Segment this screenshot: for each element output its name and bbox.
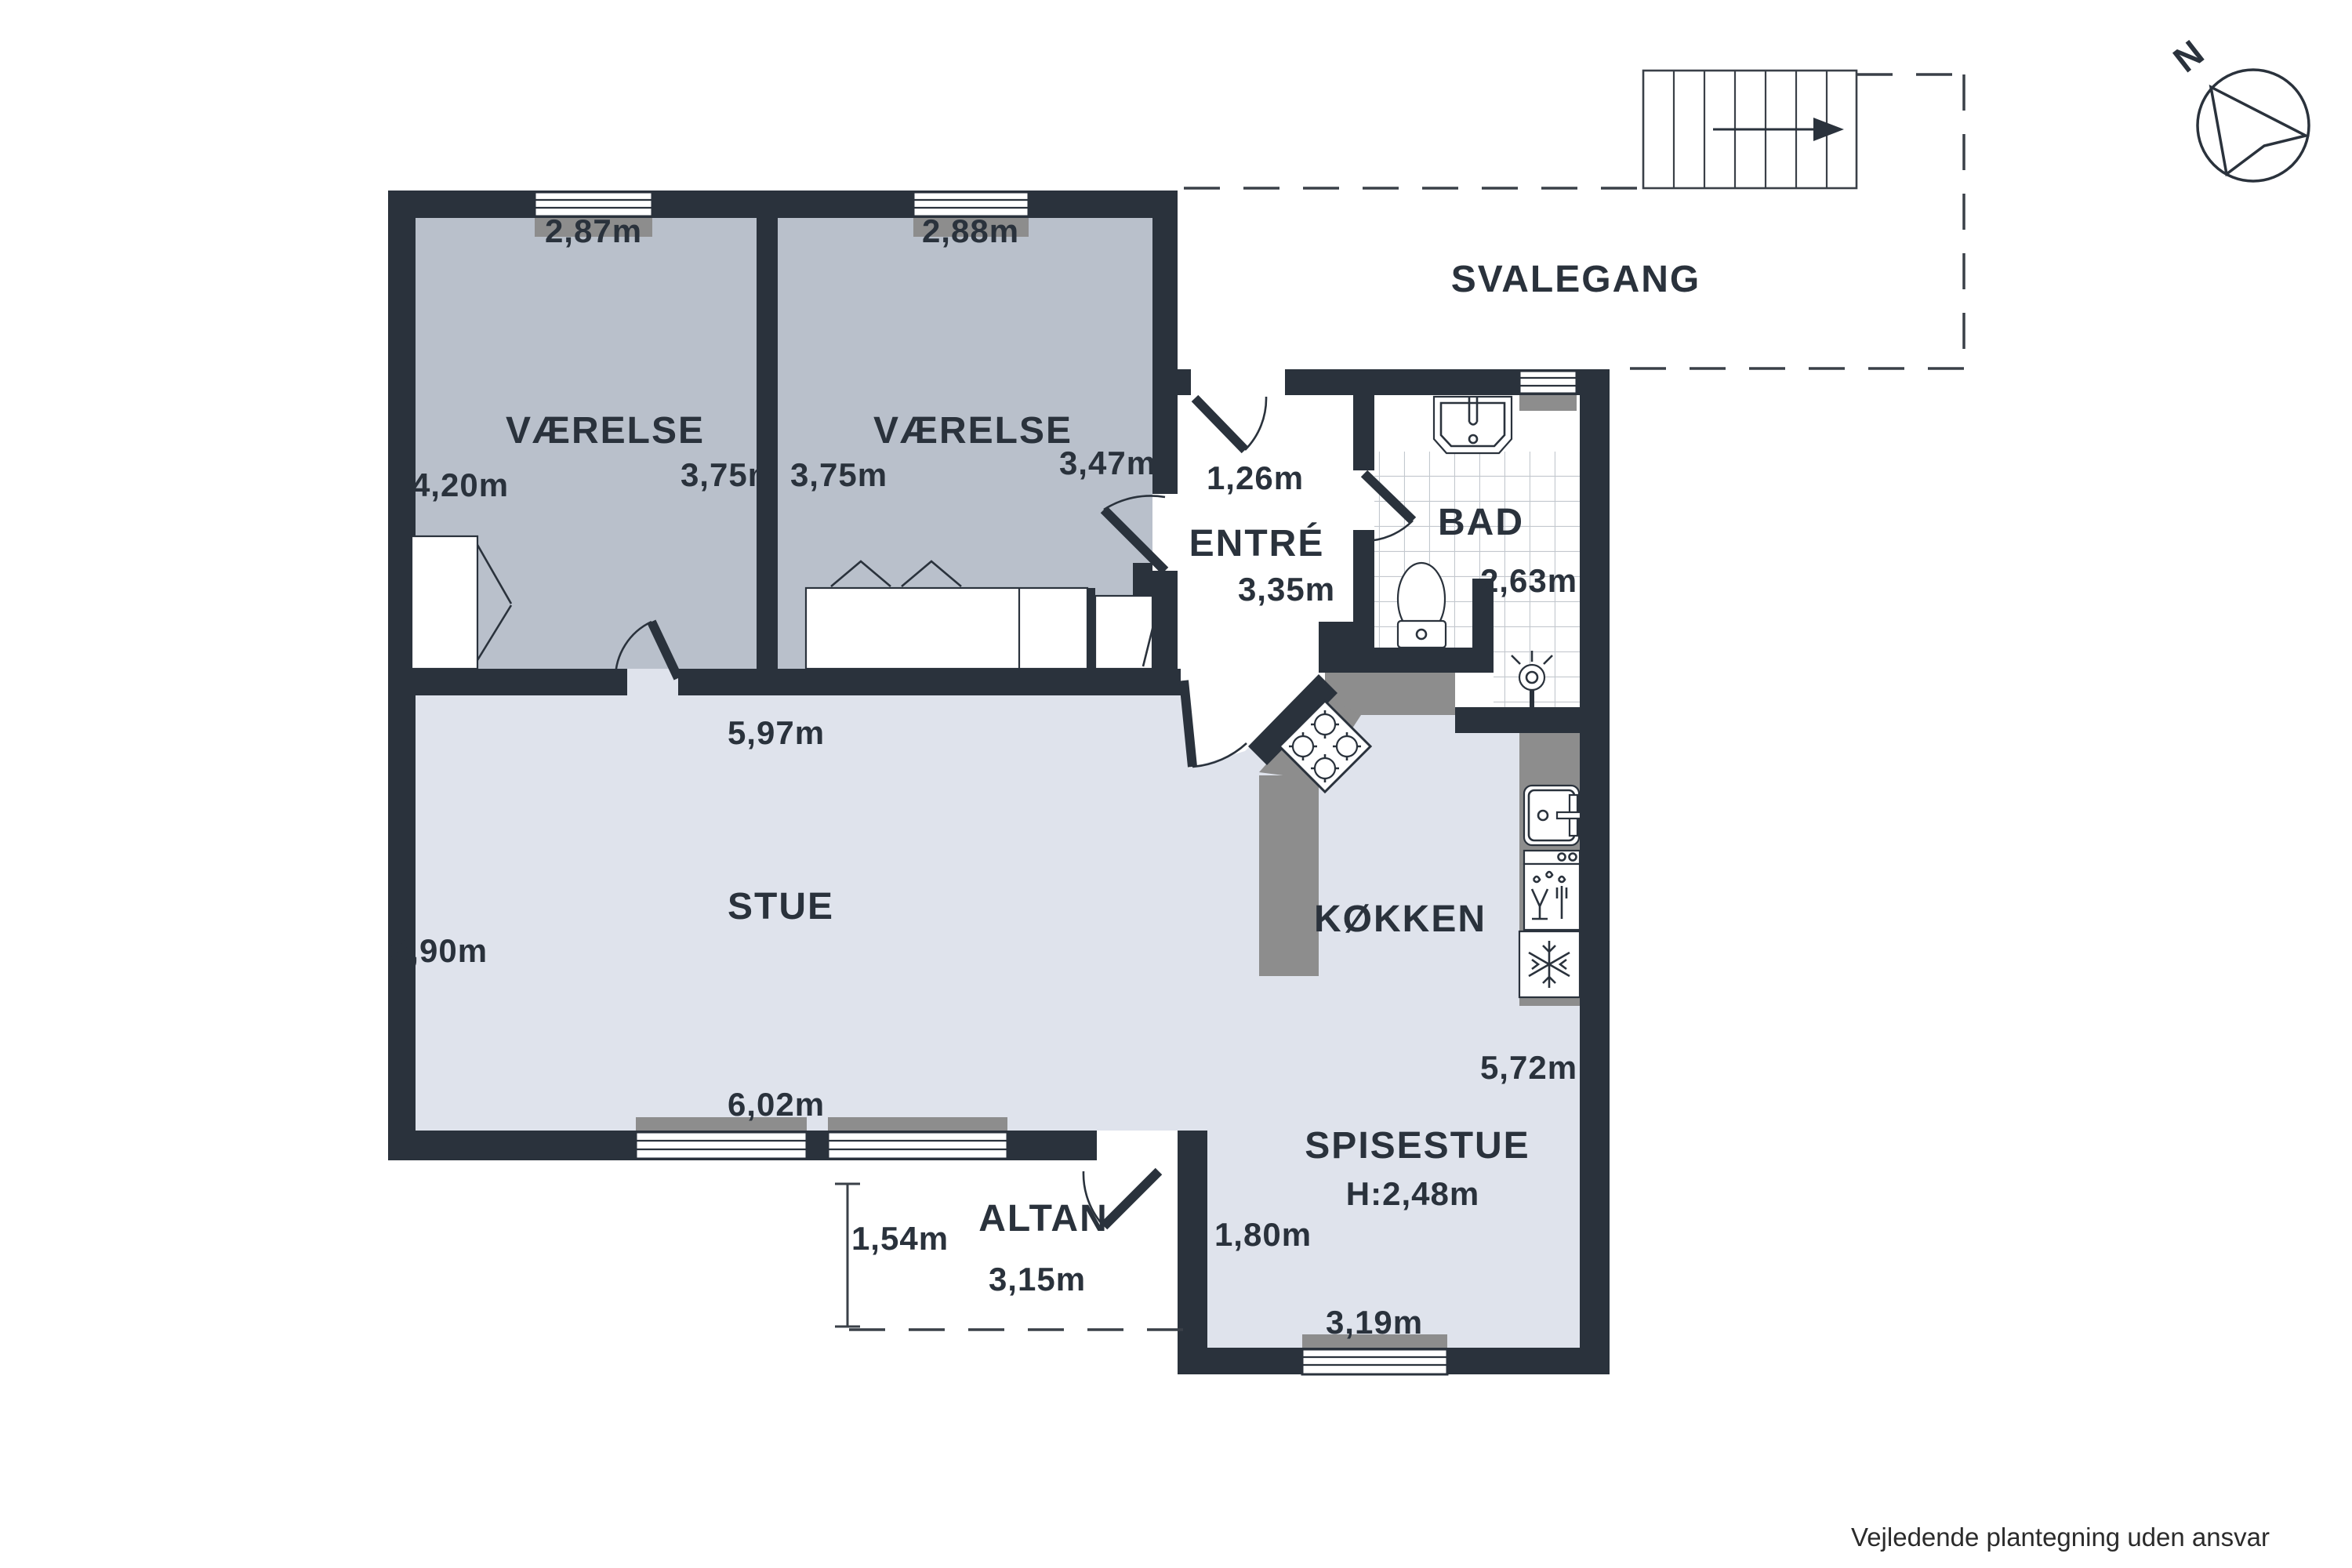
door-gap-altan — [1097, 1131, 1178, 1160]
bedroom2-dim-left: 3,75m — [790, 456, 887, 493]
wall-bedroom2-right — [1152, 191, 1178, 695]
entre-dim-door: 1,26m — [1207, 459, 1304, 496]
spisestue-label: SPISESTUE — [1305, 1125, 1530, 1167]
toilet-icon — [1398, 563, 1446, 648]
door-gap-entrance — [1191, 369, 1285, 395]
stue-window-left — [636, 1117, 807, 1159]
bedroom1-label: VÆRELSE — [506, 410, 705, 452]
wall-top-bedrooms — [388, 191, 1178, 218]
stue-label: STUE — [728, 886, 834, 927]
bedroom2-dim-top: 2,88m — [922, 212, 1019, 249]
kokken-dim-right: 5,72m — [1480, 1049, 1577, 1086]
wall-bedrooms-bottom — [388, 669, 1181, 695]
wall-bedroom-partition — [757, 218, 778, 669]
kitchen-sink-icon — [1524, 786, 1581, 845]
spisestue-ceiling: H:2,48m — [1346, 1175, 1479, 1212]
svalegang-label: SVALEGANG — [1451, 259, 1700, 300]
entre-label: ENTRÉ — [1189, 522, 1325, 564]
stue-window-mullion — [807, 1131, 828, 1160]
stue-dim-bottom: 6,02m — [728, 1086, 825, 1123]
spisestue-dim-bottom: 3,19m — [1326, 1304, 1423, 1341]
floor-plan-canvas: N 2,87m 2,88m VÆRELSE VÆRELSE 4,20m 3,75… — [0, 0, 2352, 1568]
closet-icon — [1095, 596, 1160, 669]
stue-window-right — [828, 1117, 1007, 1159]
dishwasher-icon — [1524, 851, 1580, 930]
stue-dim-top: 5,97m — [728, 714, 825, 751]
wall-closet-stub — [1133, 563, 1152, 596]
north-compass-icon: N — [2165, 32, 2309, 181]
wall-bed-closet-thin — [1087, 588, 1095, 669]
bedroom1-dim-left: 4,20m — [412, 466, 509, 503]
stairs — [1643, 71, 1857, 188]
freezer-icon — [1519, 931, 1580, 997]
wall-spisestue-left — [1178, 1131, 1207, 1374]
entre-dim-depth: 3,35m — [1238, 571, 1335, 608]
altan-dim-width: 3,15m — [989, 1261, 1086, 1298]
bedroom2-dim-right: 3,47m — [1059, 445, 1156, 481]
bathroom-sink-icon — [1434, 397, 1512, 453]
altan-dim-depth: 1,54m — [851, 1220, 949, 1257]
bedroom1-dim-right: 3,75m — [681, 456, 778, 493]
bedroom1-dim-top: 2,87m — [545, 212, 642, 249]
bad-window — [1519, 371, 1577, 411]
disclaimer-text: Vejledende plantegning uden ansvar — [1851, 1523, 2270, 1552]
kokken-label: KØKKEN — [1314, 898, 1486, 940]
bad-dim-width: 2,63m — [1480, 562, 1577, 599]
bedroom2-label: VÆRELSE — [873, 410, 1073, 452]
compass-north-label: N — [2165, 32, 2211, 80]
altan-label: ALTAN — [978, 1198, 1109, 1240]
wall-right — [1580, 369, 1610, 1374]
stue-dim-left: 3,90m — [390, 932, 488, 969]
bad-label: BAD — [1438, 502, 1524, 543]
wall-bad-bottom — [1319, 648, 1494, 673]
spisestue-dim-left: 1,80m — [1214, 1216, 1312, 1253]
counter-peninsula — [1259, 775, 1319, 976]
